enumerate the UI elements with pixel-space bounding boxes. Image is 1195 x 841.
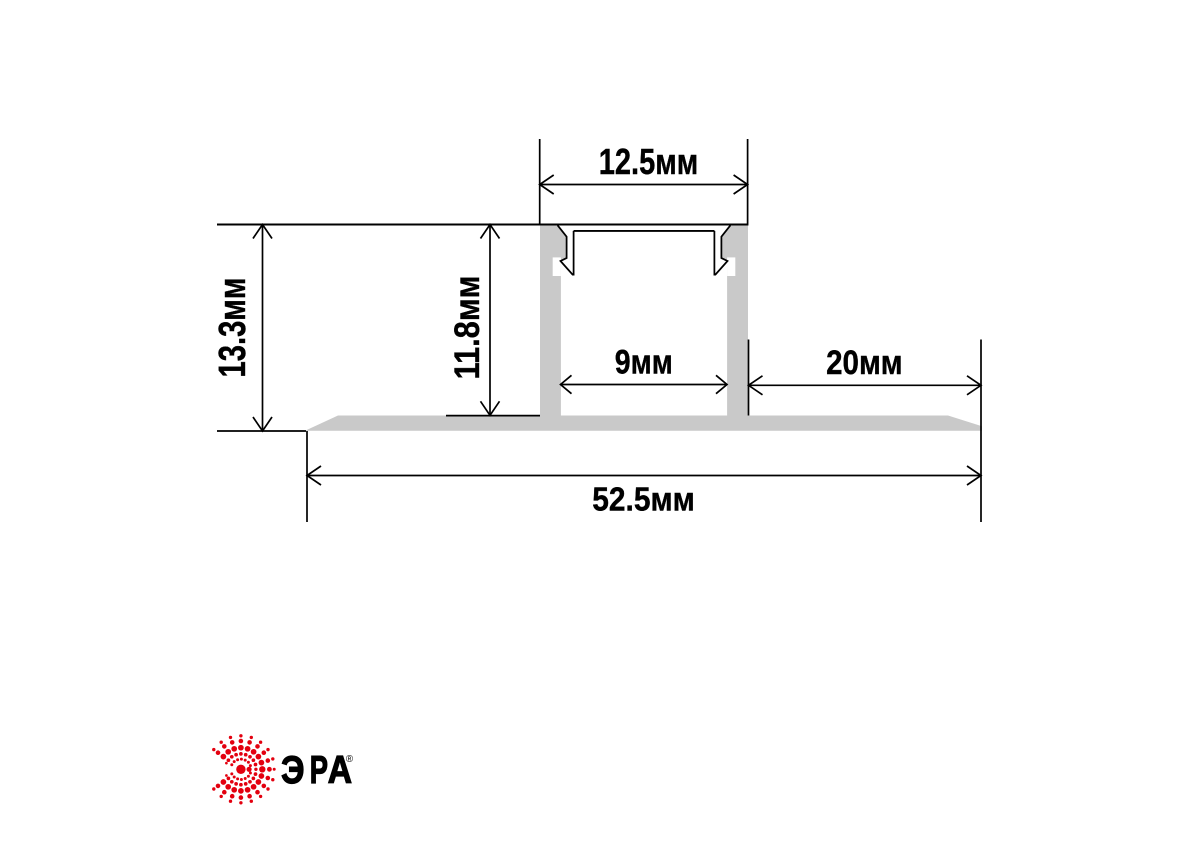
svg-text:Р: Р xyxy=(310,749,328,792)
svg-text:Э: Э xyxy=(281,747,304,791)
svg-text:13.3мм: 13.3мм xyxy=(212,278,254,378)
svg-text:11.8мм: 11.8мм xyxy=(447,276,487,380)
svg-text:12.5мм: 12.5мм xyxy=(599,141,699,182)
svg-text:52.5мм: 52.5мм xyxy=(592,481,695,518)
svg-text:20мм: 20мм xyxy=(826,344,903,382)
svg-text:®: ® xyxy=(346,754,354,765)
svg-text:9мм: 9мм xyxy=(615,343,673,381)
